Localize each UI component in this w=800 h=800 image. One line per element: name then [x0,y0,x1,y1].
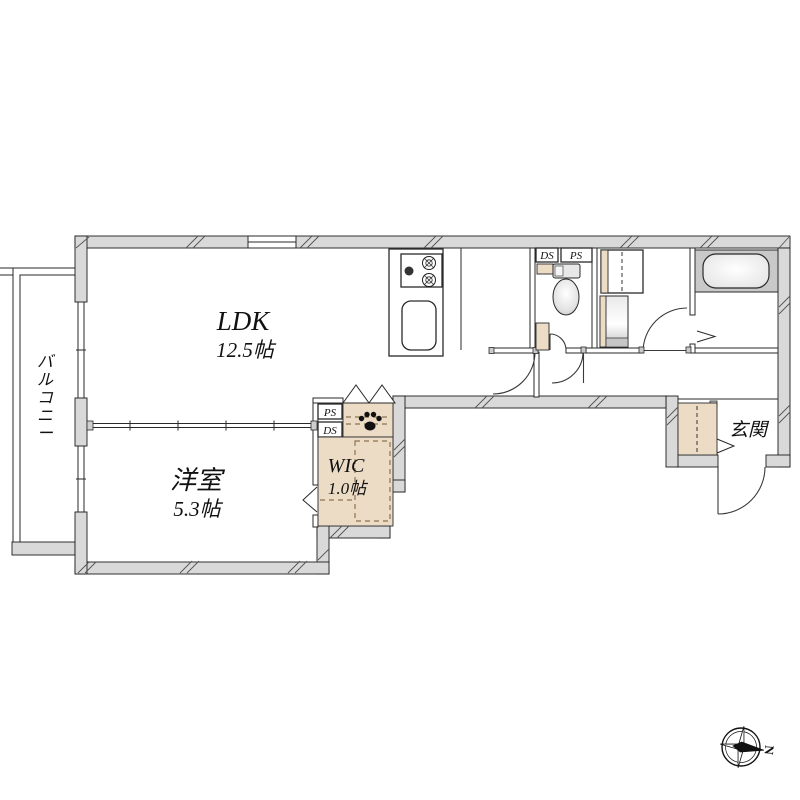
balcony: バルコニー [0,268,75,555]
compass-icon: N [717,723,777,771]
toilet-cabinet [536,323,549,350]
wall-bottom [75,562,329,574]
wall-hall-north-c [586,348,643,353]
door-arc-ldk-hall [493,352,535,394]
door-arc-washroom [643,308,687,352]
toilet-shelf [537,264,553,274]
bathroom [695,250,778,292]
wall-hall-north-b [566,348,583,353]
wall-washroom-bath-upper [690,248,695,315]
window-balcony-ldk [75,302,87,398]
washer-pan-icon [601,250,643,293]
wic-ds-label: DS [322,425,337,437]
stove-icon [401,254,442,287]
wic-ps-label: PS [323,407,337,419]
folding-door-bathroom [697,331,715,342]
toilet-room: DS PS [536,248,592,350]
toilet-icon [553,264,580,315]
wall-bath-south [695,348,778,353]
wic-label: WIC [328,455,365,477]
wall-wic-top [313,398,343,403]
compass-north-label: N [761,745,777,756]
wall-left-middle [75,398,87,446]
wall-wic-left-upper [313,398,318,485]
stove-knob [405,267,414,276]
wall-kitchen-toilet [530,248,535,352]
wall-hall-north-a [493,348,535,353]
partition-ldk-youshitsu [87,421,317,431]
folding-door-pet-space [343,385,395,403]
floor-plan-drawing: バルコニー [0,0,800,800]
ldk-area: 12.5帖 [216,338,277,362]
balcony-label: バルコニー [37,353,56,443]
folding-door-shoe-cabinet [717,439,734,453]
bathtub-icon [703,254,769,288]
pet-space [343,403,393,437]
door-arc-toilet-in [550,334,566,350]
ldk-label: LDK [216,306,272,336]
wall-wic-right [393,396,405,492]
balcony-divider-stub [0,268,13,275]
youshitsu-label: 洋室 [170,466,226,495]
wall-genkan-left [666,396,678,467]
sink-icon [402,301,436,350]
window-balcony-youshitsu [75,446,87,512]
door-arc-toilet-out [552,352,584,383]
kitchen-counter [389,249,443,356]
door-arc-entrance [718,467,765,514]
wall-genkan-bottom-right [766,455,790,467]
folding-door-wic [303,487,317,512]
floor-plan-page: バルコニー [0,0,800,800]
window-top-wall [248,236,296,248]
wic: PS DS WIC 1.0帖 [318,385,395,526]
wall-left-lower [75,512,87,574]
toilet-ds-label: DS [539,250,554,262]
wall-top-right [296,236,790,248]
wall-hall-bottom [393,396,666,408]
vanity-icon [600,296,628,347]
wall-toilet-washroom [592,248,597,352]
wall-wic-left-lower [313,515,318,527]
wall-genkan-bottom-left [675,455,718,467]
washroom [600,250,643,347]
wall-top-left [75,236,248,248]
wall-right [778,248,790,467]
wic-area: 1.0帖 [328,479,369,498]
genkan-label: 玄関 [729,419,770,441]
balcony-bottom-wall [12,542,75,555]
youshitsu-area: 5.3帖 [173,497,223,521]
toilet-ps-label: PS [569,250,583,262]
wall-left-upper [75,236,87,302]
